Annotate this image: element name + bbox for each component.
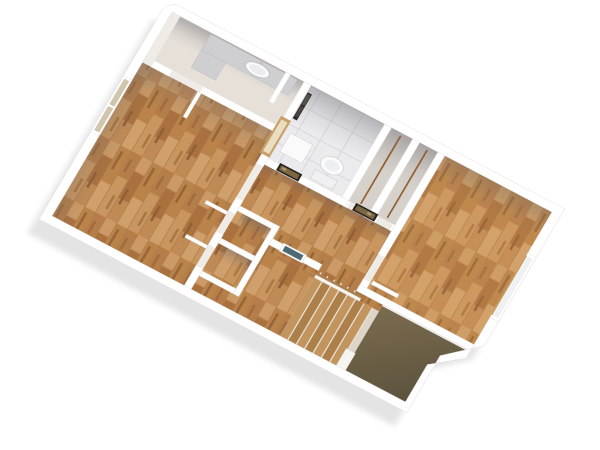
floor-plan-svg: [0, 0, 600, 450]
floor-plan-canvas: [0, 0, 600, 450]
